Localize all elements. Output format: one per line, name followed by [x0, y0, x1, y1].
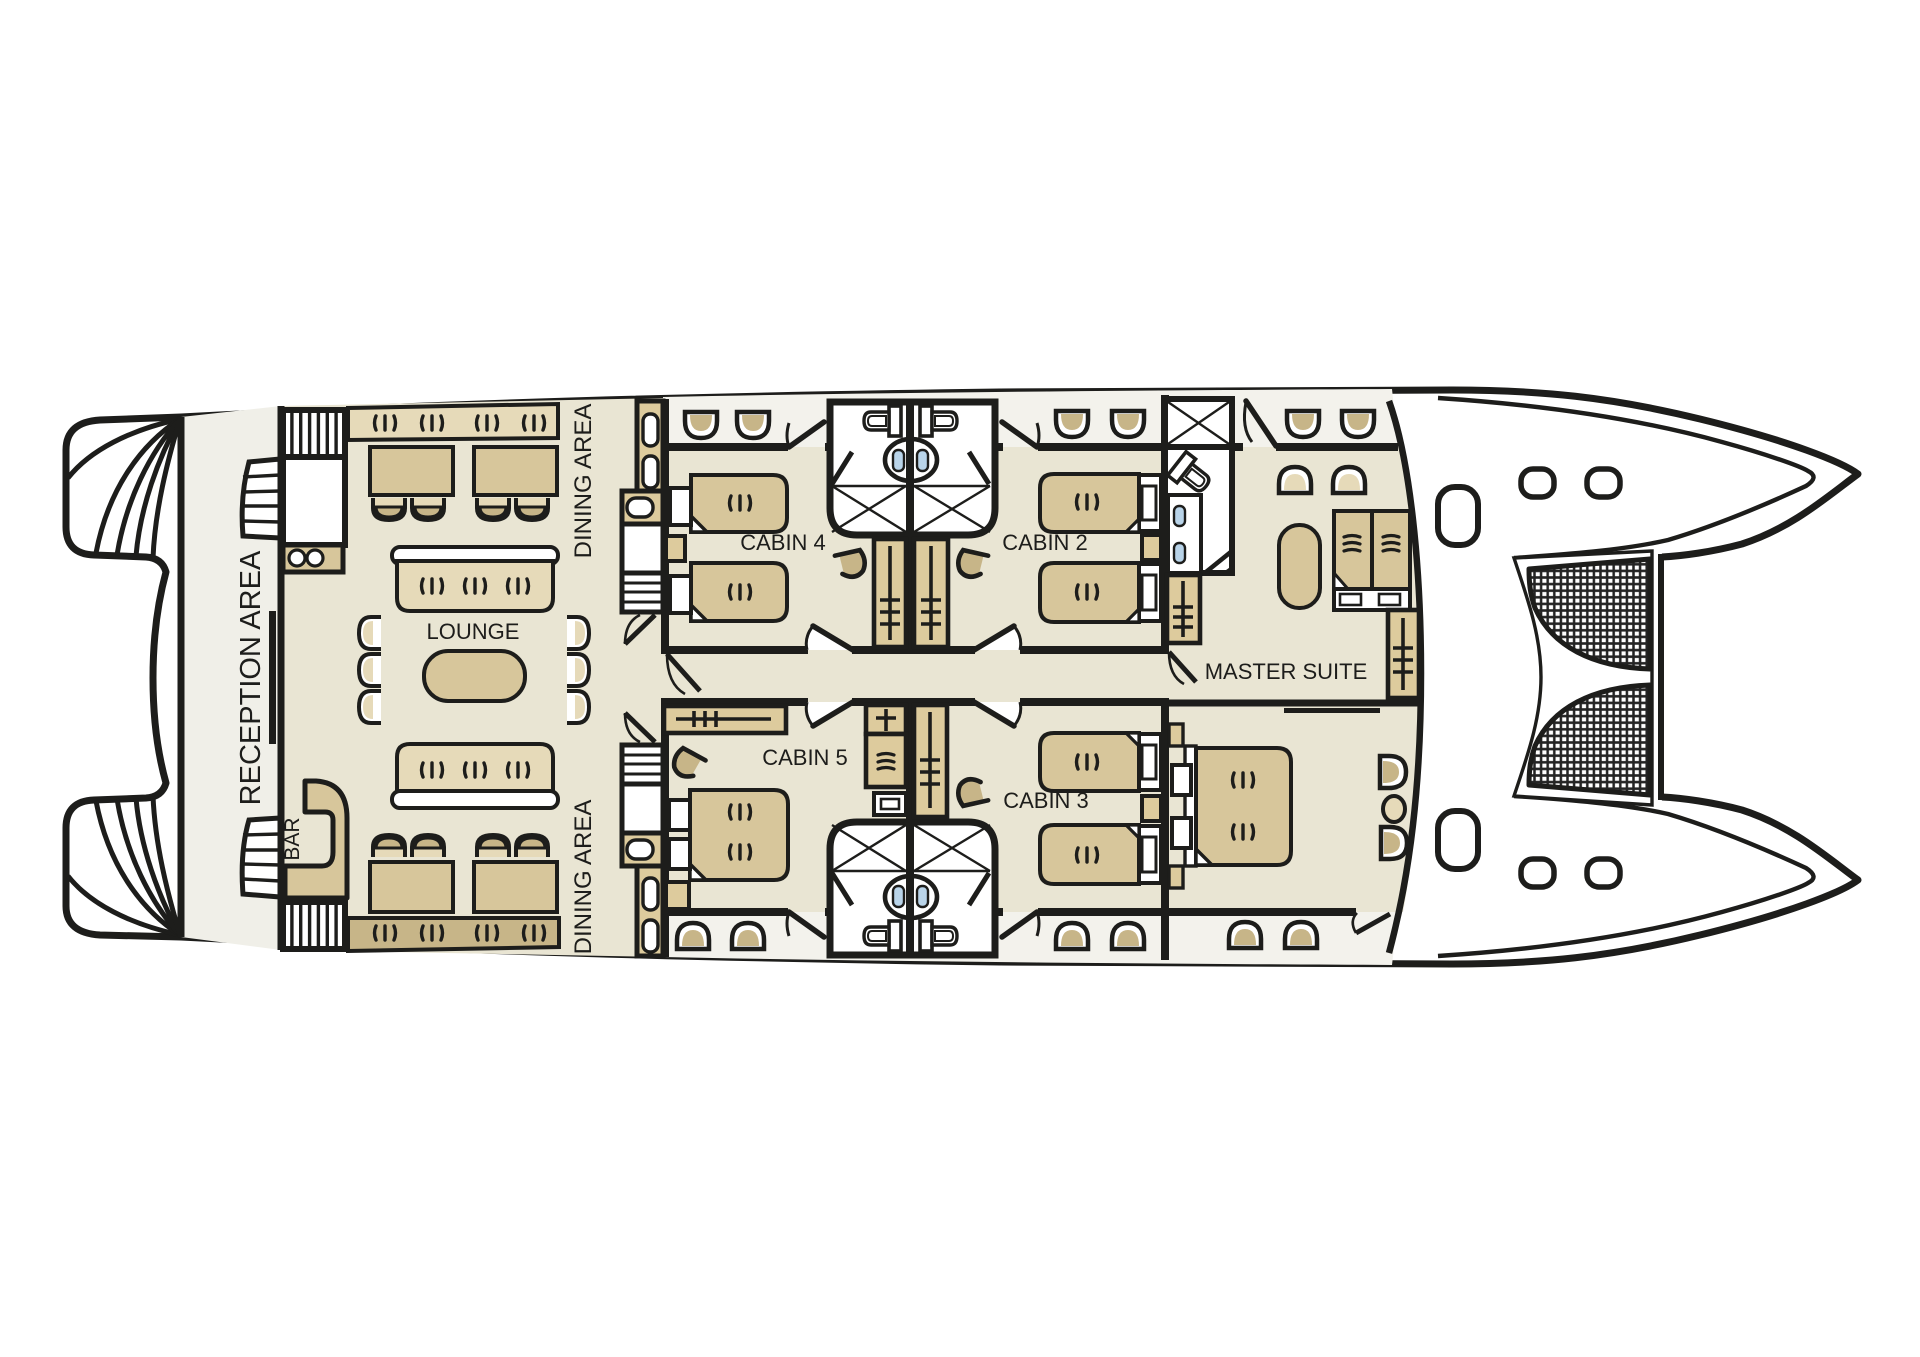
svg-text:RECEPTION AREA: RECEPTION AREA — [235, 550, 267, 805]
svg-text:CABIN 2: CABIN 2 — [1002, 530, 1088, 555]
svg-text:DINING AREA: DINING AREA — [570, 404, 597, 559]
svg-text:DINING AREA: DINING AREA — [570, 800, 597, 955]
svg-text:CABIN 5: CABIN 5 — [762, 745, 848, 770]
svg-text:CABIN 4: CABIN 4 — [740, 530, 826, 555]
svg-text:MASTER SUITE: MASTER SUITE — [1205, 659, 1368, 684]
svg-text:CABIN 3: CABIN 3 — [1003, 788, 1089, 813]
svg-text:BAR: BAR — [281, 817, 304, 860]
svg-text:LOUNGE: LOUNGE — [427, 619, 520, 644]
